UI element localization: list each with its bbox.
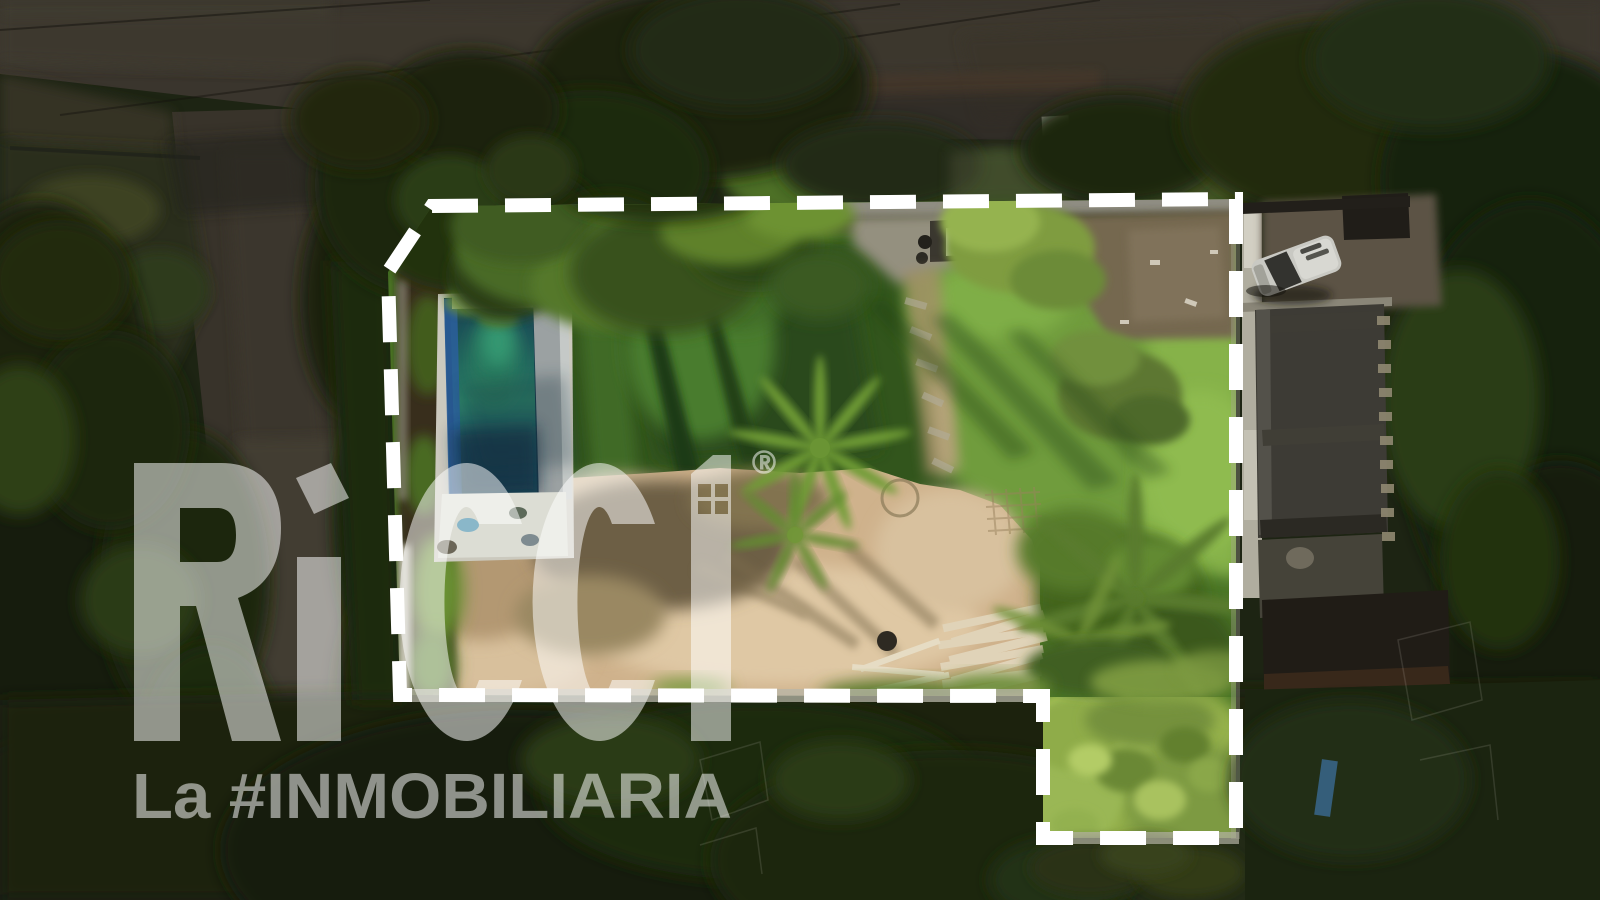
svg-text:La #INMOBILIARIA: La #INMOBILIARIA bbox=[132, 760, 732, 832]
